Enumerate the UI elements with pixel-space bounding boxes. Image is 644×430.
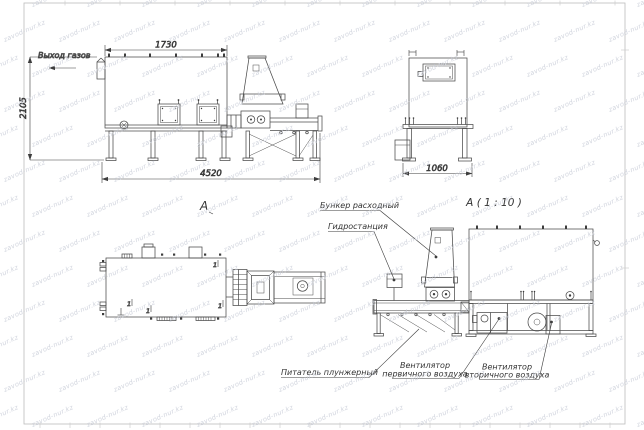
body-top-bolts bbox=[108, 54, 225, 58]
svg-text:1: 1 bbox=[213, 261, 217, 269]
body-support-frame bbox=[105, 131, 230, 161]
view-detail-a bbox=[373, 226, 599, 337]
view-plan: 1 1 1 1 bbox=[100, 244, 325, 321]
front-top-marks bbox=[409, 50, 464, 56]
svg-text:первичного воздуха: первичного воздуха bbox=[382, 370, 468, 379]
svg-text:А: А bbox=[199, 199, 208, 213]
gas-outlet-stub bbox=[97, 58, 105, 79]
front-support bbox=[403, 117, 474, 161]
drawing-canvas: Выход газов bbox=[0, 0, 644, 430]
dim-2105-text: 2105 bbox=[19, 97, 29, 119]
svg-text:Гидростанция: Гидростанция bbox=[328, 222, 388, 231]
dim-1060: 1060 bbox=[403, 163, 472, 177]
svg-text:вторичного воздуха: вторичного воздуха bbox=[465, 371, 550, 380]
feeder-head-side bbox=[221, 111, 270, 137]
plan-position-marks: 1 1 1 1 bbox=[118, 260, 224, 315]
detail-underframe bbox=[466, 300, 596, 337]
detail-valve-icon bbox=[566, 292, 574, 300]
view-label-a: А bbox=[199, 199, 213, 214]
hatch-door-1 bbox=[158, 99, 180, 125]
hydraulic-station-box bbox=[387, 274, 402, 301]
feeder-head-detail bbox=[426, 288, 455, 302]
hatch-door-2 bbox=[197, 99, 219, 125]
dim-4520: 4520 bbox=[102, 133, 320, 183]
dim-1730: 1730 bbox=[105, 41, 227, 57]
hopper-side bbox=[240, 56, 285, 104]
plan-left-flanges bbox=[100, 263, 106, 311]
view-side: Выход газов bbox=[38, 51, 322, 161]
detail-view-title: А ( 1 : 10 ) bbox=[465, 197, 522, 209]
hopper-detail bbox=[422, 228, 458, 287]
callout-fan-secondary: Вентилятор вторичного воздуха bbox=[465, 324, 552, 380]
dim-1730-text: 1730 bbox=[155, 41, 177, 51]
sheet-frame bbox=[24, 1, 629, 429]
detail-bottom-studs bbox=[470, 291, 592, 300]
detail-top-bolts bbox=[476, 226, 587, 230]
plan-feeder-assembly bbox=[226, 270, 325, 306]
view-front bbox=[395, 50, 473, 161]
front-side-box bbox=[395, 140, 410, 160]
svg-text:Бункер расходный: Бункер расходный bbox=[320, 201, 399, 210]
dim-1060-text: 1060 bbox=[426, 164, 448, 174]
technical-drawing: Выход газов bbox=[0, 0, 644, 430]
svg-text:Питатель плунжерный: Питатель плунжерный bbox=[281, 368, 378, 377]
feeder-trough-detail bbox=[373, 300, 469, 316]
dim-4520-text: 4520 bbox=[200, 169, 222, 179]
svg-text:1: 1 bbox=[218, 302, 222, 310]
svg-text:1: 1 bbox=[127, 300, 131, 308]
lifting-hook-icon bbox=[593, 240, 599, 245]
plan-bottom-strips bbox=[157, 317, 215, 321]
svg-text:1: 1 bbox=[146, 307, 150, 315]
fan-primary bbox=[473, 313, 508, 334]
conveyor-side bbox=[243, 104, 322, 161]
front-door bbox=[418, 64, 455, 81]
gas-outlet-label: Выход газов bbox=[38, 51, 91, 60]
dim-2105: 2105 bbox=[19, 57, 104, 160]
callout-hydraulic: Гидростанция bbox=[328, 222, 395, 281]
plan-bolts bbox=[102, 254, 221, 320]
feeder-stand bbox=[374, 313, 462, 336]
